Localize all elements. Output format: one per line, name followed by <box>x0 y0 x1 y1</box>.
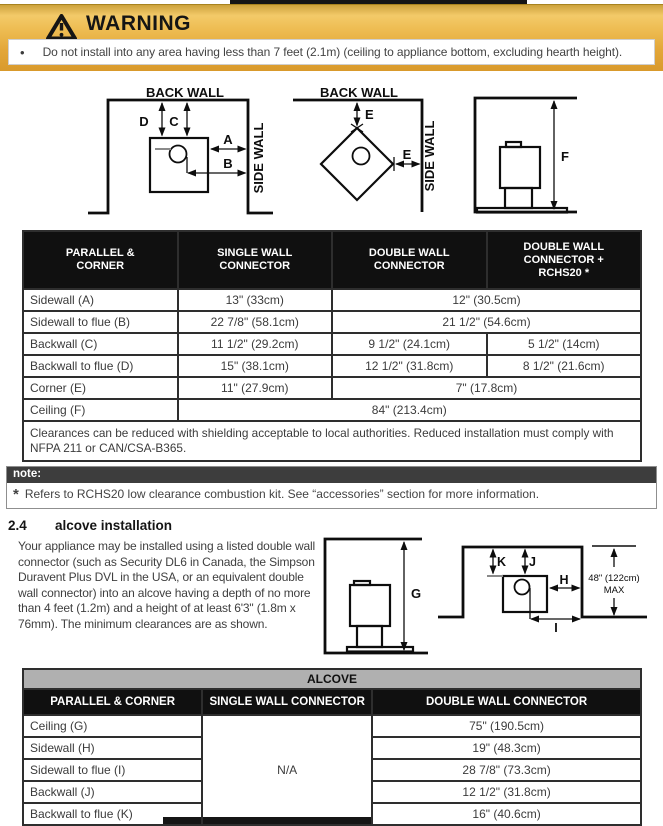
cell: 16" (40.6cm) <box>372 803 641 825</box>
cell: 15" (38.1cm) <box>178 355 333 377</box>
dim-d-label: D <box>139 114 148 129</box>
alcove-table-container: ALCOVE PARALLEL & CORNER SINGLE WALL CON… <box>22 668 642 826</box>
row-label: Sidewall to flue (I) <box>23 759 202 781</box>
alcove-front-diagram: G <box>318 524 443 664</box>
corner-clearance-diagram: BACK WALL E E SIDE WALL <box>287 86 452 226</box>
table-row: Ceiling (F) 84" (213.4cm) <box>23 399 641 421</box>
row-label: Corner (E) <box>23 377 178 399</box>
side-wall-label: SIDE WALL <box>251 123 266 194</box>
stove-body <box>500 147 540 188</box>
row-label: Backwall (J) <box>23 781 202 803</box>
stove-pedestal <box>505 188 532 208</box>
cell: 21 1/2" (54.6cm) <box>332 311 641 333</box>
table-footnote: Clearances can be reduced with shielding… <box>23 421 641 461</box>
side-wall-label: SIDE WALL <box>422 121 437 192</box>
note-label: note: <box>7 467 656 483</box>
cell: 13" (33cm) <box>178 289 333 311</box>
cell: 12" (30.5cm) <box>332 289 641 311</box>
cell: 7" (17.8cm) <box>332 377 641 399</box>
cell: 9 1/2" (24.1cm) <box>332 333 487 355</box>
dim-k-label: K <box>497 555 506 569</box>
section-title: alcove installation <box>55 518 172 533</box>
flue-circle <box>170 146 187 163</box>
stove-base <box>347 647 413 652</box>
flue-circle <box>353 148 370 165</box>
table-row: Sidewall to flue (B) 22 7/8" (58.1cm) 21… <box>23 311 641 333</box>
cell: 5 1/2" (14cm) <box>487 333 642 355</box>
ceiling-clearance-diagram: F <box>465 86 585 221</box>
wall-outline <box>88 100 273 213</box>
back-wall-label: BACK WALL <box>146 86 224 100</box>
col-header: SINGLE WALL CONNECTOR <box>202 689 372 715</box>
dim-e-label: E <box>365 107 374 122</box>
section-body-text: Your appliance may be installed using a … <box>18 539 320 633</box>
note-text: Refers to RCHS20 low clearance combustio… <box>25 487 539 501</box>
header-row: PARALLEL & CORNER SINGLE WALL CONNECTOR … <box>23 231 641 289</box>
section-number: 2.4 <box>8 518 27 533</box>
header-row: PARALLEL & CORNER SINGLE WALL CONNECTOR … <box>23 689 641 715</box>
parallel-clearance-diagram: BACK WALL D C A B SIDE WALL <box>80 86 285 226</box>
alcove-top-diagram: K J H I 48" (122cm) MAX <box>430 524 663 669</box>
table-row: Ceiling (G) N/A 75" (190.5cm) <box>23 715 641 737</box>
row-label: Backwall to flue (D) <box>23 355 178 377</box>
cell: 22 7/8" (58.1cm) <box>178 311 333 333</box>
cell: 8 1/2" (21.6cm) <box>487 355 642 377</box>
clearance-table-container: PARALLEL & CORNER SINGLE WALL CONNECTOR … <box>22 230 642 462</box>
dim-h-label: H <box>559 573 568 587</box>
table-row: Backwall to flue (D) 15" (38.1cm) 12 1/2… <box>23 355 641 377</box>
back-wall-label: BACK WALL <box>320 86 398 100</box>
max-depth-max-label: MAX <box>604 585 625 596</box>
row-label: Sidewall (A) <box>23 289 178 311</box>
dim-e-label: E <box>403 147 412 162</box>
dim-b-label: B <box>223 156 232 171</box>
cell: 12 1/2" (31.8cm) <box>332 355 487 377</box>
table-row: Corner (E) 11" (27.9cm) 7" (17.8cm) <box>23 377 641 399</box>
note-body: *Refers to RCHS20 low clearance combusti… <box>7 483 656 508</box>
warning-text-box: • Do not install into any area having le… <box>8 39 655 65</box>
table-row: Sidewall (A) 13" (33cm) 12" (30.5cm) <box>23 289 641 311</box>
col-header: SINGLE WALL CONNECTOR <box>178 231 333 289</box>
page: { "warning": { "title": "WARNING", "bull… <box>0 0 663 826</box>
dim-i-label: I <box>554 621 557 635</box>
warning-banner: WARNING • Do not install into any area h… <box>0 4 663 71</box>
row-label: Sidewall to flue (B) <box>23 311 178 333</box>
alcove-title: ALCOVE <box>23 669 641 689</box>
table-row: Backwall (C) 11 1/2" (29.2cm) 9 1/2" (24… <box>23 333 641 355</box>
dim-c-label: C <box>169 114 179 129</box>
row-label: Ceiling (G) <box>23 715 202 737</box>
alcove-title-row: ALCOVE <box>23 669 641 689</box>
dim-j-label: J <box>529 555 536 569</box>
row-label: Ceiling (F) <box>23 399 178 421</box>
cell: 84" (213.4cm) <box>178 399 642 421</box>
dim-g-label: G <box>411 586 421 601</box>
dim-f-label: F <box>561 149 569 164</box>
col-header: PARALLEL & CORNER <box>23 231 178 289</box>
col-header: DOUBLE WALL CONNECTOR + RCHS20 * <box>487 231 642 289</box>
stove-pedestal <box>357 626 382 647</box>
row-label: Sidewall (H) <box>23 737 202 759</box>
cell: 11" (27.9cm) <box>178 377 333 399</box>
row-label: Backwall (C) <box>23 333 178 355</box>
bullet-glyph: • <box>20 45 25 60</box>
col-header: DOUBLE WALL CONNECTOR <box>332 231 487 289</box>
warning-triangle-icon <box>46 14 77 41</box>
warning-text: Do not install into any area having less… <box>43 45 623 59</box>
cell: 75" (190.5cm) <box>372 715 641 737</box>
clearance-table: PARALLEL & CORNER SINGLE WALL CONNECTOR … <box>22 230 642 462</box>
col-header: DOUBLE WALL CONNECTOR <box>372 689 641 715</box>
cell: 11 1/2" (29.2cm) <box>178 333 333 355</box>
col-header: PARALLEL & CORNER <box>23 689 202 715</box>
note-box: note: *Refers to RCHS20 low clearance co… <box>6 466 657 509</box>
cell: 19" (48.3cm) <box>372 737 641 759</box>
asterisk-marker: * <box>13 486 19 503</box>
row-label: Backwall to flue (K) <box>23 803 202 825</box>
stove-body <box>350 585 390 626</box>
dim-a-label: A <box>223 132 233 147</box>
warning-title: WARNING <box>86 12 191 36</box>
na-cell: N/A <box>202 715 372 825</box>
flue-circle <box>515 580 530 595</box>
footnote-row: Clearances can be reduced with shielding… <box>23 421 641 461</box>
cell: 12 1/2" (31.8cm) <box>372 781 641 803</box>
alcove-table: ALCOVE PARALLEL & CORNER SINGLE WALL CON… <box>22 668 642 826</box>
cell: 28 7/8" (73.3cm) <box>372 759 641 781</box>
max-depth-value: 48" (122cm) <box>588 573 639 584</box>
